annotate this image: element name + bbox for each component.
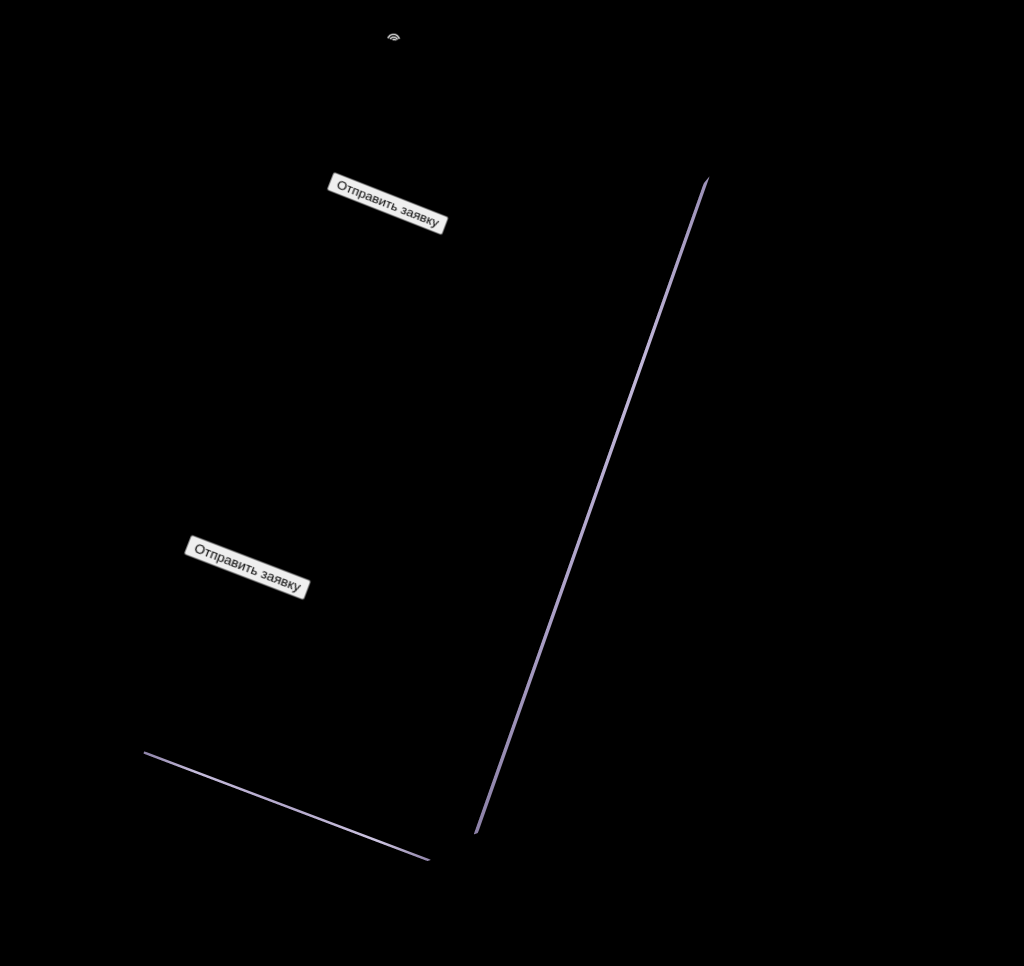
smartphone: О нас Преимущества Портфолио рондо <box>111 12 722 872</box>
gallery-photo-2[interactable] <box>146 650 496 783</box>
gallery-photo-7[interactable] <box>146 650 496 783</box>
gallery-photo-3[interactable] <box>146 650 496 783</box>
phone-screen: О нас Преимущества Портфолио рондо <box>134 12 722 813</box>
gallery-photo-1[interactable] <box>146 650 496 783</box>
works-gallery <box>146 650 496 783</box>
phone-mockup-scene: О нас Преимущества Портфолио рондо <box>247 28 611 828</box>
furniture-website: О нас Преимущества Портфолио рондо <box>134 12 722 813</box>
phone-frame: О нас Преимущества Портфолио рондо <box>134 12 722 813</box>
gallery-photo-5[interactable] <box>146 650 496 783</box>
gallery-photo-4[interactable] <box>146 650 496 783</box>
gallery-photo-8[interactable] <box>146 650 496 783</box>
gallery-photo-6[interactable] <box>146 650 496 783</box>
